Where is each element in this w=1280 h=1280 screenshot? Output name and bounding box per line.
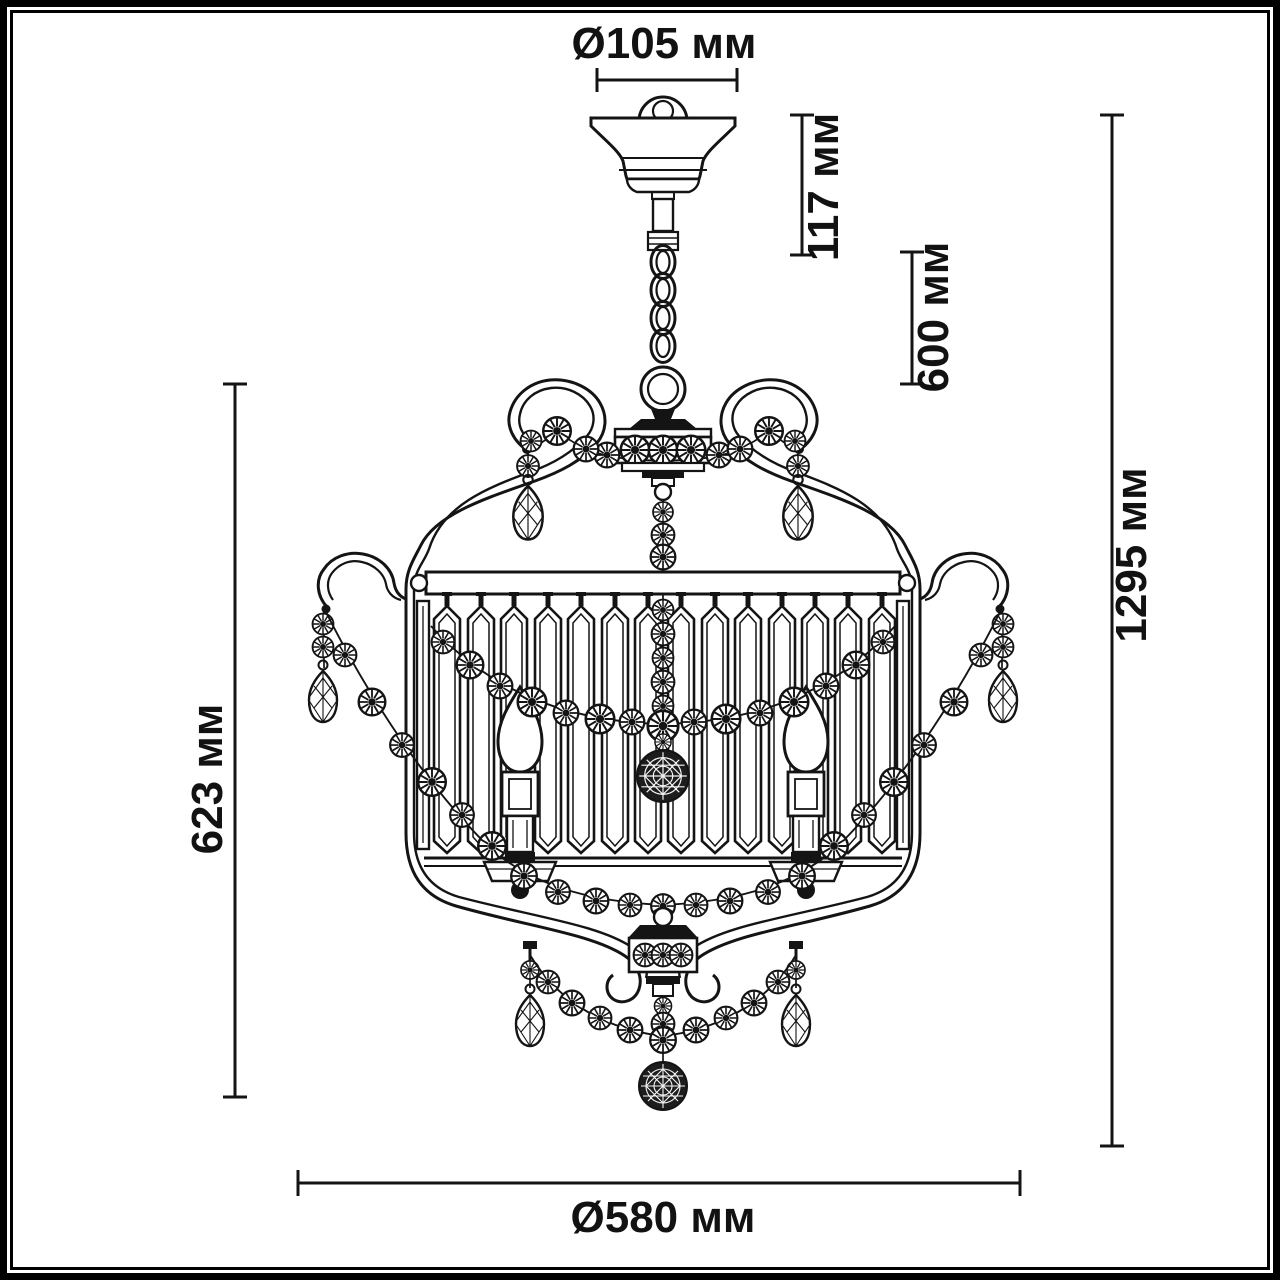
canopy-diameter-label: Ø105 мм <box>572 19 757 68</box>
total-height-label: 1295 мм <box>1107 467 1156 642</box>
chandelier-technical-drawing: Ø105 мм 117 мм 600 мм 1295 мм 623 мм Ø58… <box>0 0 1280 1280</box>
drawing-sheet: { "figure": { "type": "technical-line-dr… <box>0 0 1280 1280</box>
dimension-chain-length: 600 мм <box>900 242 958 393</box>
body-height-label: 623 мм <box>183 704 232 855</box>
dimension-body-height: 623 мм <box>183 384 247 1097</box>
dimension-canopy-height: 117 мм <box>790 113 848 261</box>
body-diameter-label: Ø580 мм <box>571 1193 756 1242</box>
canopy-height-label: 117 мм <box>799 113 848 261</box>
dimension-canopy-diameter: Ø105 мм <box>572 19 757 92</box>
dimension-body-diameter: Ø580 мм <box>298 1170 1020 1242</box>
left-garlands-and-candle <box>309 417 663 1046</box>
canopy-chain-hub <box>586 97 740 572</box>
dimension-total-height: 1295 мм <box>1100 115 1156 1146</box>
chain-length-label: 600 мм <box>909 242 958 393</box>
